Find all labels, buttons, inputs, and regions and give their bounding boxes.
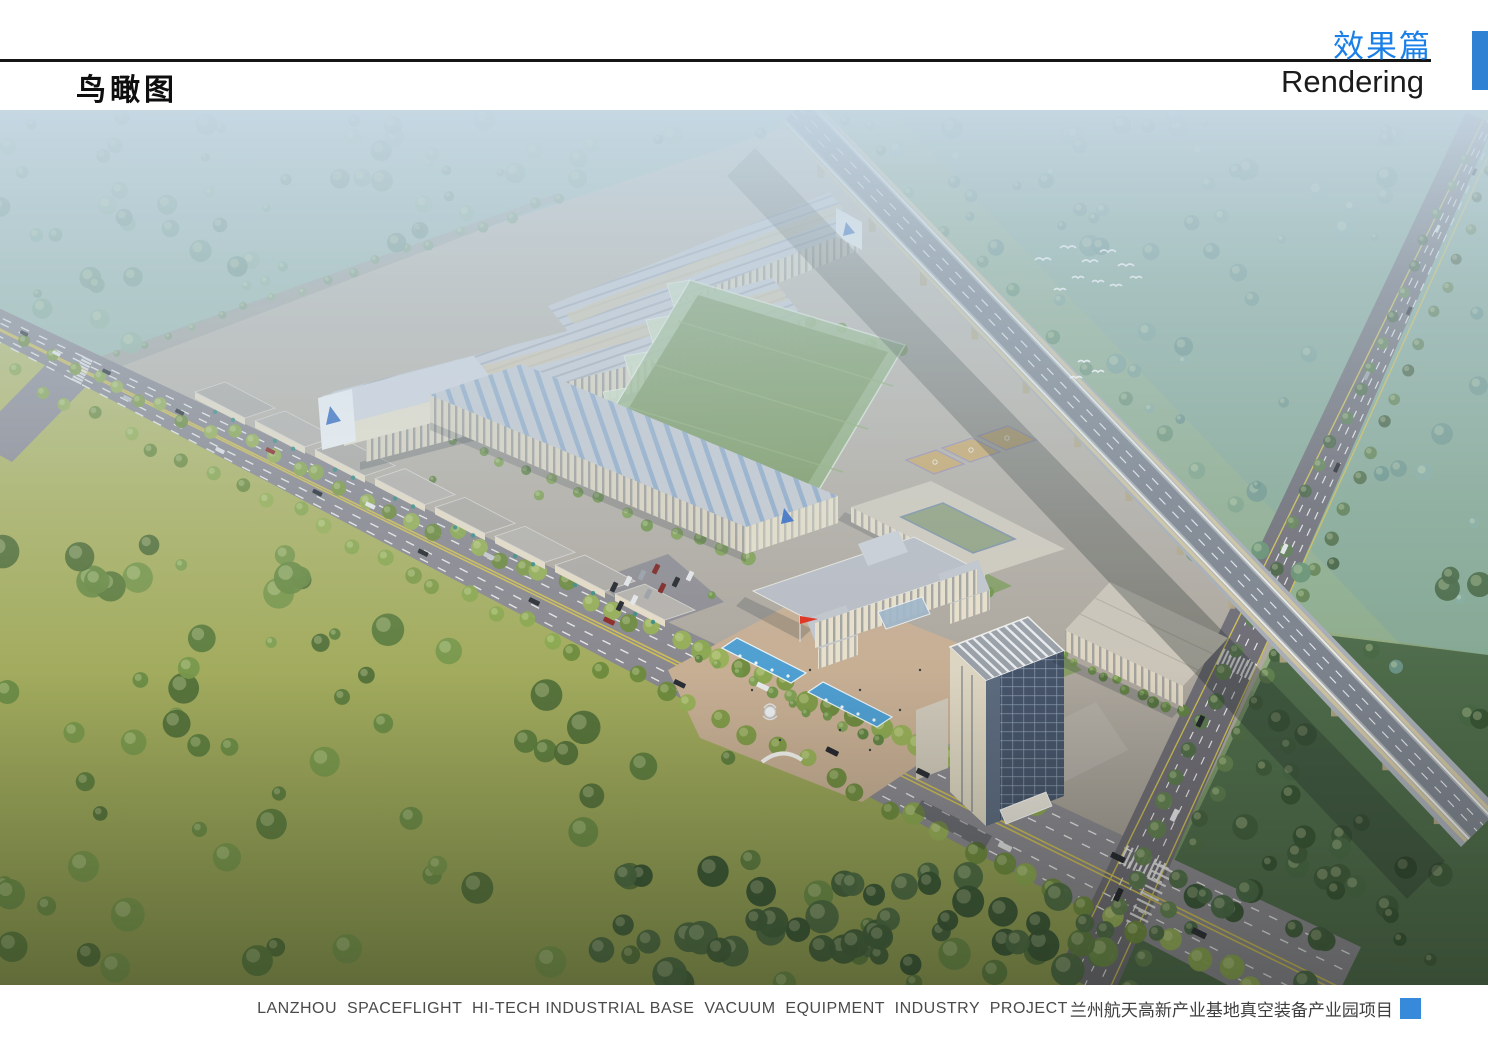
haze-overlay (0, 110, 1488, 670)
caption-bar: LANZHOU SPACEFLIGHT HI-TECH INDUSTRIAL B… (0, 985, 1488, 1052)
caption-marker-square (1400, 998, 1421, 1019)
header-tab-marker (1472, 31, 1488, 90)
header-divider-line (0, 59, 1431, 62)
section-label-cn: 效果篇 (1333, 21, 1432, 66)
page-title: 鸟瞰图 (76, 65, 178, 109)
caption-chinese: 兰州航天高新产业基地真空装备产业园项目 (1070, 996, 1393, 1021)
caption-english: LANZHOU SPACEFLIGHT HI-TECH INDUSTRIAL B… (257, 1000, 1068, 1018)
aerial-rendering-svg (0, 110, 1488, 985)
section-label-en: Rendering (1281, 64, 1424, 100)
presentation-page: 效果篇 Rendering 鸟瞰图 (0, 0, 1488, 1052)
bottom-vignette (0, 670, 1488, 985)
aerial-rendering (0, 110, 1488, 985)
